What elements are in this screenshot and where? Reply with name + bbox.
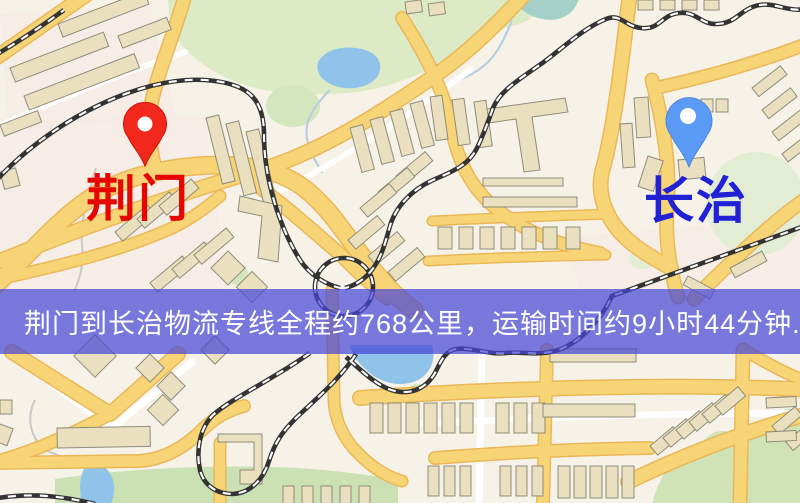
destination-city-label: 长治 — [644, 173, 748, 229]
route-info-text: 荆门到长治物流专线全程约768公里，运输时间约9小时44分钟. — [0, 302, 800, 341]
map-canvas[interactable]: 荆门 长治 — [0, 0, 800, 503]
origin-city-label: 荆门 — [86, 171, 190, 227]
route-info-banner: 荆门到长治物流专线全程约768公里，运输时间约9小时44分钟. — [0, 289, 800, 354]
route-map[interactable]: 荆门 长治 荆门到长治物流专线全程约768公里，运输时间约9小时44分钟. — [0, 0, 800, 503]
